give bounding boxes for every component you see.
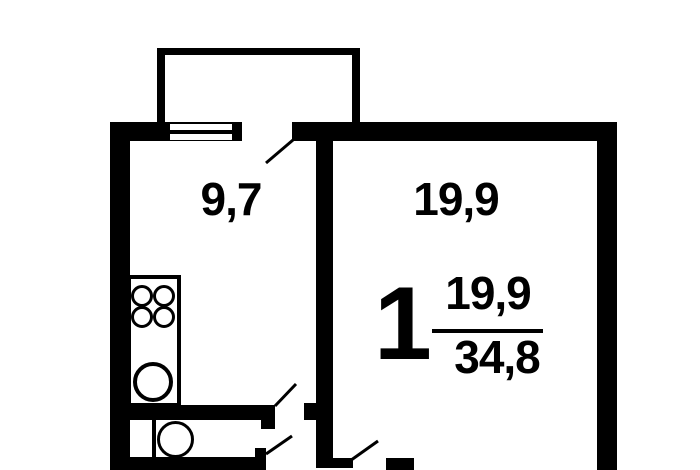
wall-kitchen-bottom	[130, 405, 275, 420]
door-swing-layer	[0, 0, 700, 470]
kitchen-area-label: 9,7	[201, 176, 262, 222]
toilet-icon	[157, 421, 194, 458]
wall-right	[597, 122, 617, 470]
stove-burner-icon	[131, 285, 153, 307]
total-area-label: 34,8	[454, 334, 540, 380]
wall-bottom-block	[386, 458, 414, 470]
wall-divider	[316, 141, 333, 468]
window-mid-line	[170, 130, 232, 134]
rooms-count-label: 1	[374, 272, 431, 376]
wall-divider-foot	[333, 458, 353, 468]
balcony-door-opening	[242, 122, 292, 141]
stove-burner-icon	[131, 306, 153, 328]
sink-icon	[133, 362, 173, 402]
floor-plan: 9,7 19,9 1 19,9 34,8	[0, 0, 700, 470]
bath-divider-line	[152, 420, 156, 457]
balcony-wall-right	[352, 48, 360, 122]
livingroom-area-label: 19,9	[413, 176, 499, 222]
door-swing-bathroom	[266, 436, 292, 454]
balcony-wall-top	[157, 48, 360, 55]
kitchen-door-jamb-left	[261, 420, 275, 429]
living-area-label: 19,9	[445, 270, 531, 316]
stove-burner-icon	[153, 285, 175, 307]
stove-burner-icon	[153, 306, 175, 328]
door-swing-balcony	[266, 140, 293, 163]
wall-bath-bottom	[110, 457, 266, 470]
balcony-wall-left	[157, 48, 165, 122]
kitchen-door-jamb-right	[304, 403, 316, 420]
door-swing-kitchen	[275, 384, 296, 406]
wall-bath-end-block	[255, 448, 266, 457]
